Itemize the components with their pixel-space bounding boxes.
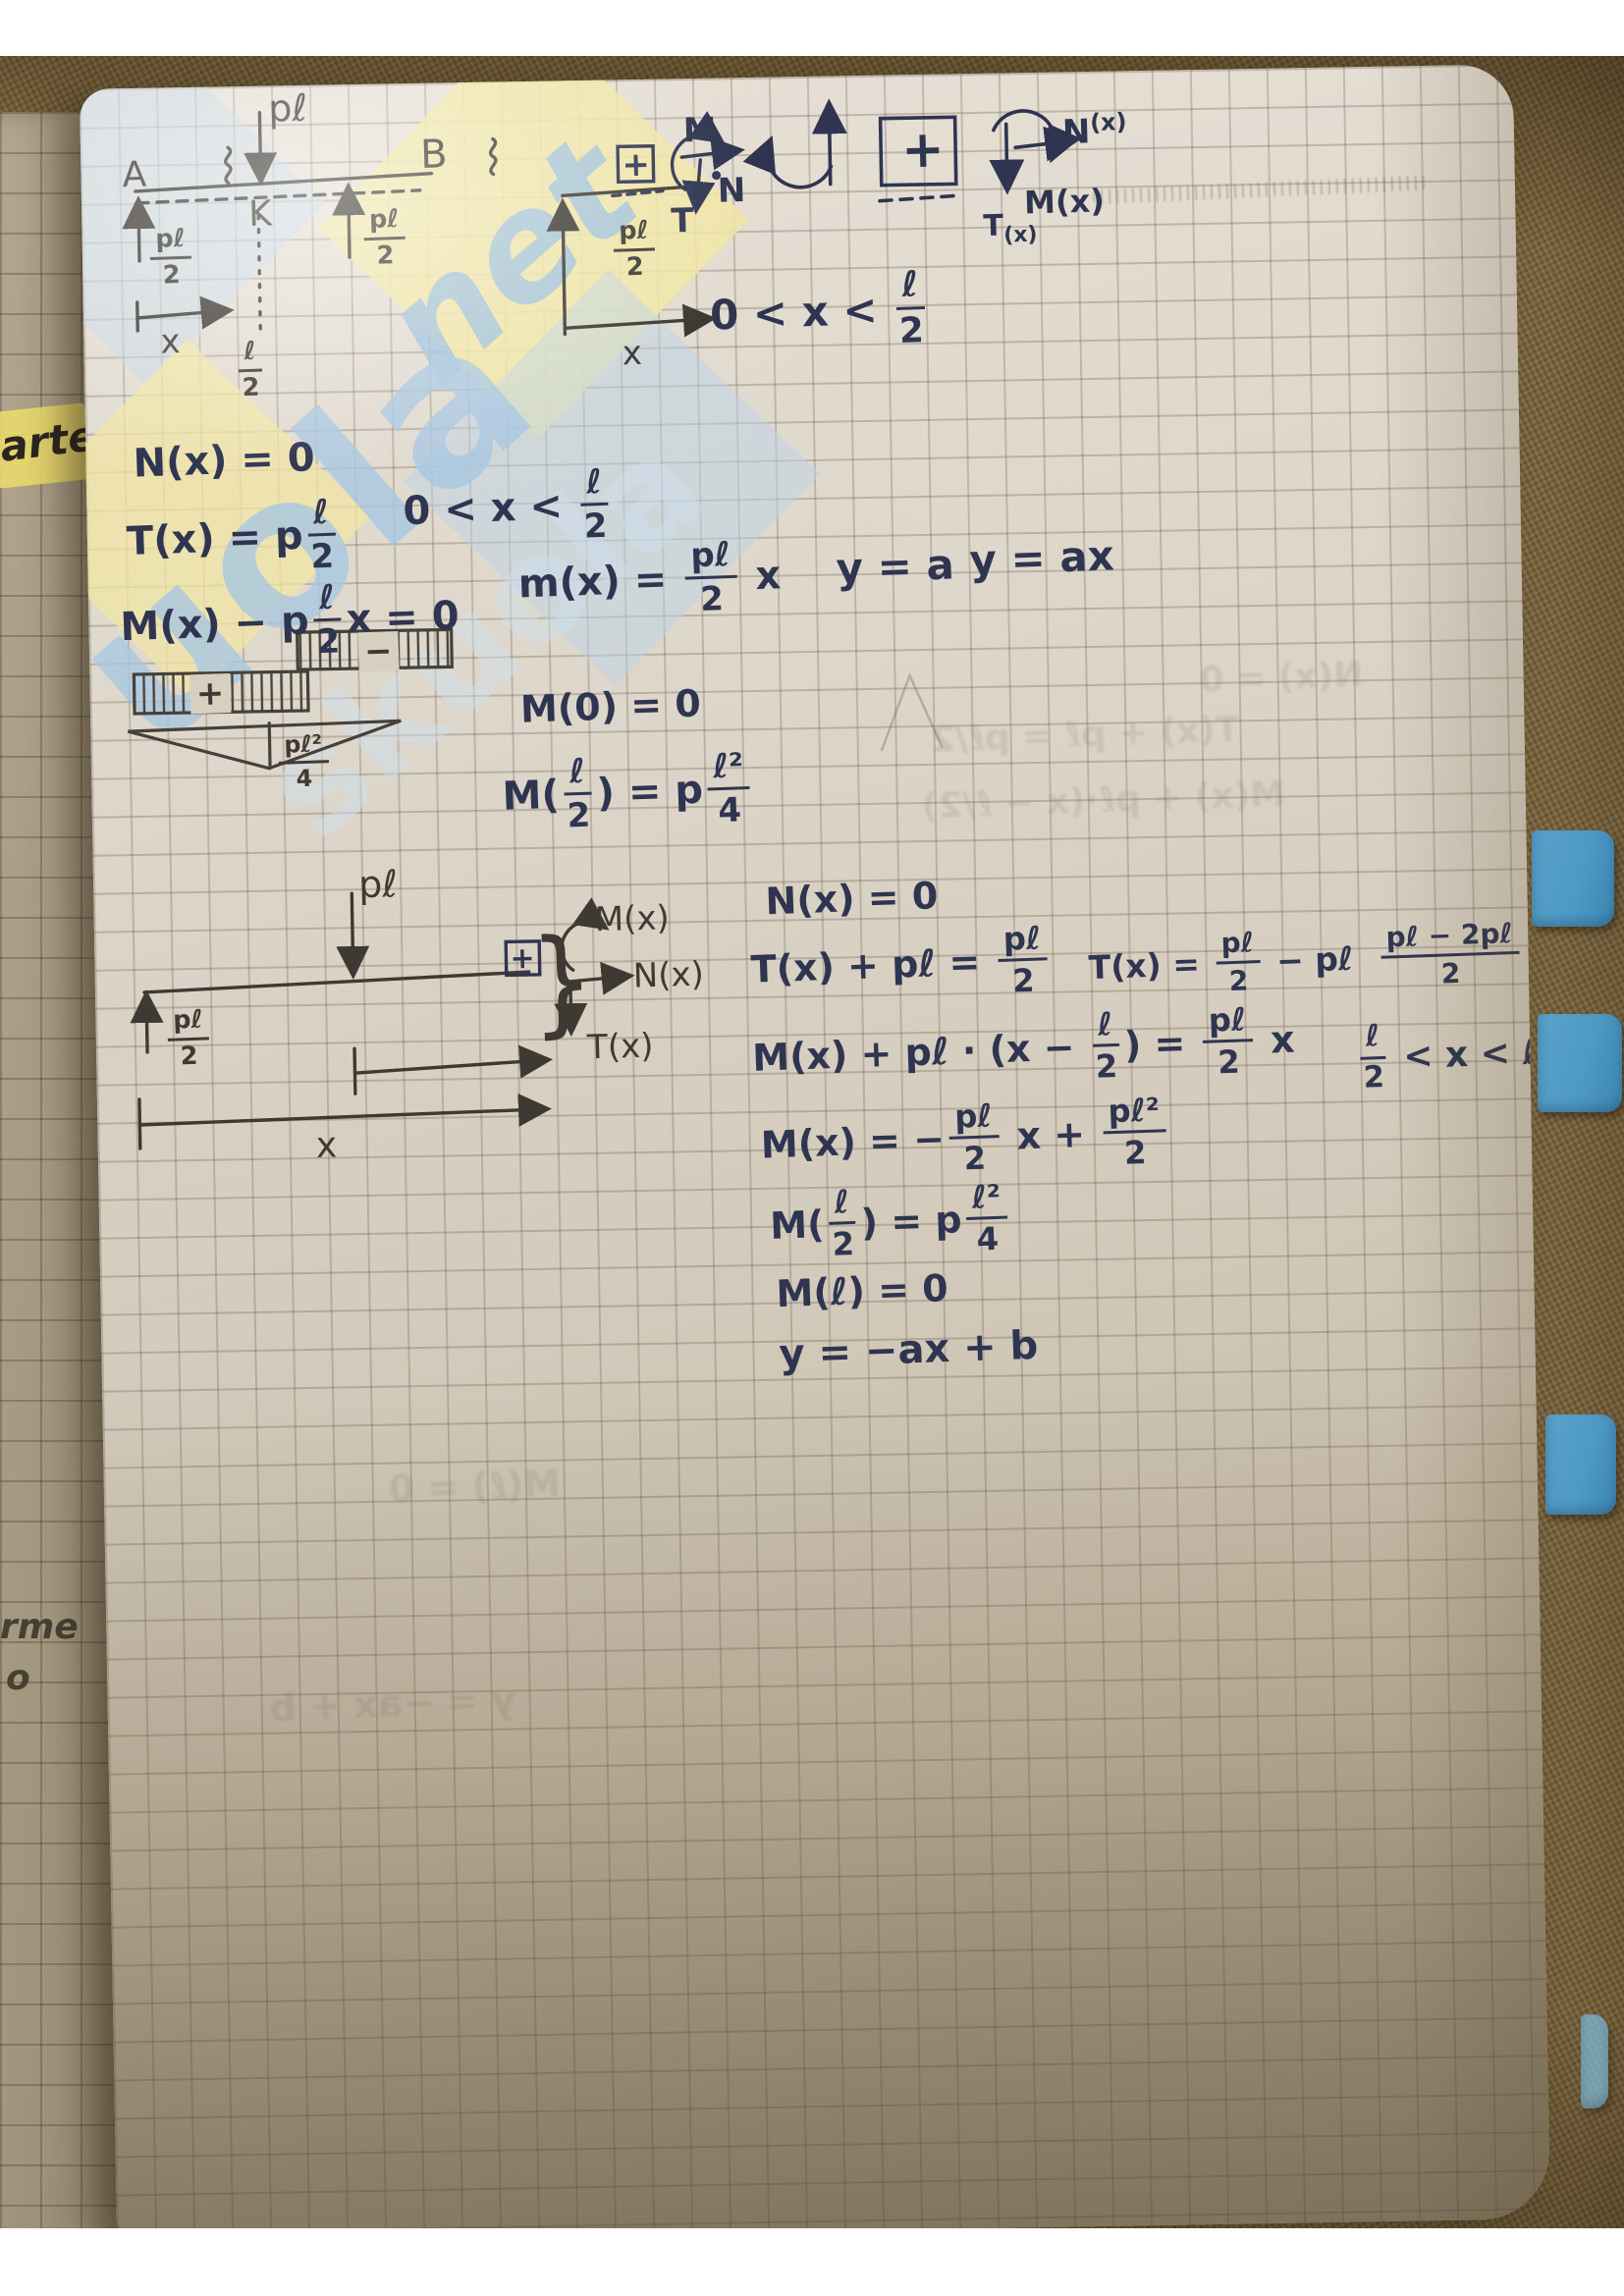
sticky-tab bbox=[1538, 1014, 1622, 1112]
normal-label: N(x) bbox=[632, 958, 704, 995]
sticky-tab bbox=[1545, 1415, 1616, 1515]
n-arrow bbox=[681, 150, 738, 157]
load-label: pℓ bbox=[358, 865, 399, 905]
plus-sign-convention: + bbox=[900, 123, 945, 178]
fbd-reaction-label: pℓ2 bbox=[608, 218, 661, 281]
equation-n2: N(x) = 0 bbox=[765, 874, 939, 923]
margin-note-mid: rme bbox=[0, 1607, 79, 1647]
support-a-label: A bbox=[122, 157, 147, 194]
equation-linear: y = a bbox=[836, 540, 955, 592]
domain-condition-2: ℓ2 < x < ℓ bbox=[1354, 1017, 1541, 1095]
load-label: pℓ bbox=[268, 89, 308, 130]
plus-sign-box-label: + bbox=[622, 148, 650, 184]
shear-plus-sign: + bbox=[189, 673, 231, 714]
beam-line bbox=[144, 972, 529, 992]
reaction-a-label: pℓ2 bbox=[144, 226, 197, 289]
point-k-label: K bbox=[248, 195, 273, 233]
equation-m-balance: M(x) − pℓ2x = 0 bbox=[119, 576, 460, 666]
sticky-tab bbox=[1532, 830, 1614, 927]
shear-label: T bbox=[671, 204, 694, 240]
sticky-tab bbox=[1581, 2014, 1608, 2109]
normal-label: N bbox=[717, 174, 745, 209]
reaction-arrow bbox=[146, 996, 147, 1052]
equation-n: N(x) = 0 bbox=[133, 435, 316, 486]
photo-border-top bbox=[0, 0, 1624, 56]
equation-m2: M(x) = −pℓ2 x + pℓ²2 bbox=[760, 1094, 1172, 1182]
photo-of-notebook: arte rme o net uola skuola N(x) = 0 T(x)… bbox=[0, 0, 1624, 2296]
shear-label: T(x) bbox=[587, 1030, 654, 1067]
equation-m2-mid: M(ℓ2) = pℓ²4 bbox=[769, 1180, 1013, 1262]
equation-t: T(x) = pℓ2 bbox=[126, 495, 342, 580]
domain-condition: 0 < x < ℓ2 bbox=[402, 465, 615, 550]
moment-label: M bbox=[682, 113, 717, 149]
load-arrow bbox=[259, 113, 260, 180]
curly-brace: } bbox=[528, 912, 595, 1049]
equation-linear: y = ax bbox=[969, 531, 1115, 584]
convention-n-label: N(x) bbox=[1061, 110, 1127, 151]
ccw-moment-arrow bbox=[767, 141, 831, 188]
reaction-arrow bbox=[138, 202, 139, 261]
equation-m: m(x) = pℓ2 x bbox=[516, 536, 782, 622]
reaction-arrow bbox=[349, 188, 350, 257]
moment-triangle bbox=[128, 721, 402, 771]
faint-pencil-triangle bbox=[881, 675, 943, 751]
convention-t-label: T(x) bbox=[983, 210, 1038, 248]
moment-peak-label: pℓ²4 bbox=[273, 732, 335, 792]
fbd-x-label: x bbox=[622, 337, 642, 372]
half-span-label: ℓ2 bbox=[233, 339, 268, 400]
equation-m0: M(0) = 0 bbox=[519, 681, 701, 730]
margin-note-low: o bbox=[6, 1658, 30, 1698]
support-b-label: B bbox=[420, 133, 449, 176]
equation-linear-2: y = −ax + b bbox=[779, 1323, 1039, 1377]
x-dimension-label: x bbox=[315, 1127, 337, 1164]
photo-border-bottom bbox=[0, 2228, 1624, 2296]
t-arrow bbox=[695, 160, 701, 208]
x-axis-label: x bbox=[160, 325, 181, 360]
cw-moment-arrow bbox=[993, 110, 1056, 157]
equation-m-mid: M(ℓ2) = pℓ²4 bbox=[501, 749, 756, 835]
equation-m2-end: M(ℓ) = 0 bbox=[776, 1266, 949, 1315]
load-arrow bbox=[352, 893, 352, 973]
reaction-b-label: pℓ2 bbox=[358, 207, 411, 270]
reaction-label: pℓ2 bbox=[162, 1007, 215, 1070]
moment-label: M(x) bbox=[594, 901, 670, 938]
domain-condition: 0 < x < ℓ2 bbox=[709, 267, 932, 355]
notebook-page: net uola skuola N(x) = 0 T(x) + pℓ = pℓ/… bbox=[80, 64, 1550, 2243]
x-axis-arrow bbox=[137, 310, 228, 318]
beam-line bbox=[135, 174, 432, 191]
shear-minus-sign: − bbox=[357, 631, 399, 671]
dimension-arrow bbox=[139, 1109, 545, 1125]
dimension-arrow bbox=[354, 1060, 546, 1073]
equation-t2: T(x) + pℓ = pℓ2 bbox=[749, 922, 1054, 1006]
